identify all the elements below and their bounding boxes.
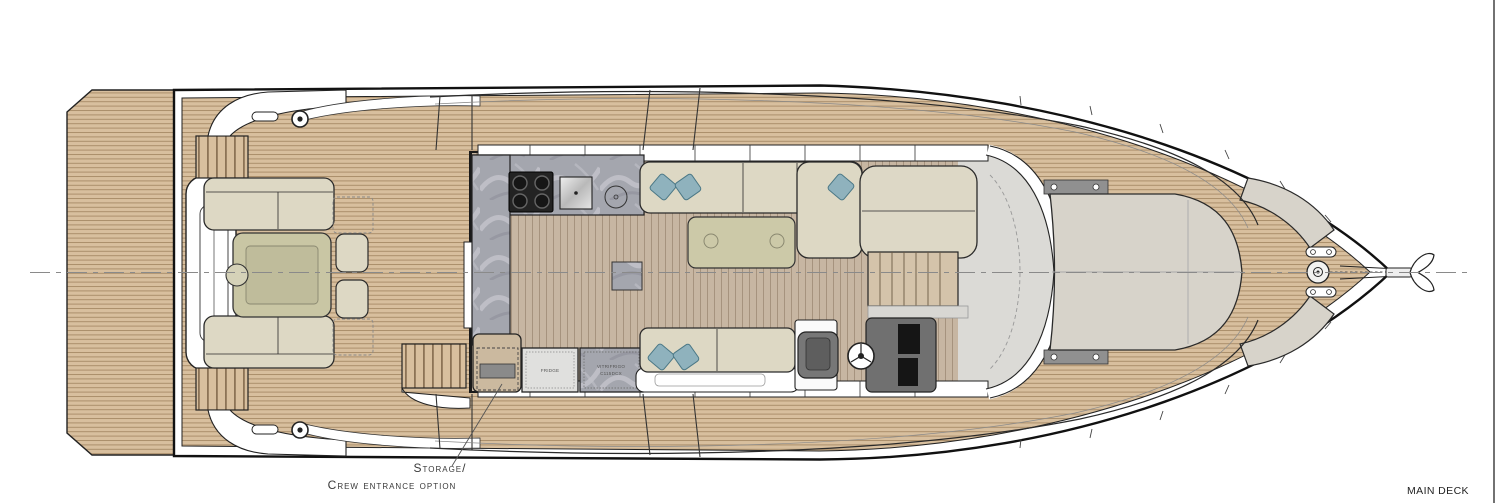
stool-2 <box>336 280 368 318</box>
cooktop-icon <box>509 172 553 212</box>
cockpit-table-top <box>246 246 318 304</box>
vitrifrigo-cabinet: VITRIFRIGO C115DCX <box>580 348 643 392</box>
galley-island <box>612 262 642 290</box>
crew-storage-cabinet <box>473 334 521 392</box>
aft-sofa-port <box>204 178 334 230</box>
cocktail-table <box>226 264 248 286</box>
main-deck-plan: FRIDGE VITRIFRIGO C115DCX <box>0 0 1500 503</box>
storage-label-line2: Crew entrance option <box>328 478 457 492</box>
sink-icon <box>560 177 592 209</box>
salon-sofa-chaise <box>797 162 862 258</box>
transom-steps-starboard <box>196 368 248 410</box>
vitrifrigo-label-2: C115DCX <box>600 371 622 376</box>
fridge-label: FRIDGE <box>541 368 560 373</box>
galley-counter-column <box>472 155 510 345</box>
steering-wheel-icon <box>848 343 874 369</box>
stairs-landing <box>868 306 968 318</box>
main-deck-plan-page: FRIDGE VITRIFRIGO C115DCX <box>0 0 1500 503</box>
copilot-lounger <box>860 166 977 258</box>
fridge-cabinet: FRIDGE <box>522 348 578 392</box>
stool-1 <box>336 234 368 272</box>
aft-sofa-starboard <box>204 316 334 368</box>
companionway-stairs <box>868 252 958 306</box>
transom-steps-port <box>196 136 248 178</box>
deck-name-label: MAIN DECK <box>1407 485 1469 497</box>
storage-label-line1: Storage/ <box>414 461 467 475</box>
vitrifrigo-label-1: VITRIFRIGO <box>597 364 626 369</box>
side-steps <box>402 344 466 388</box>
